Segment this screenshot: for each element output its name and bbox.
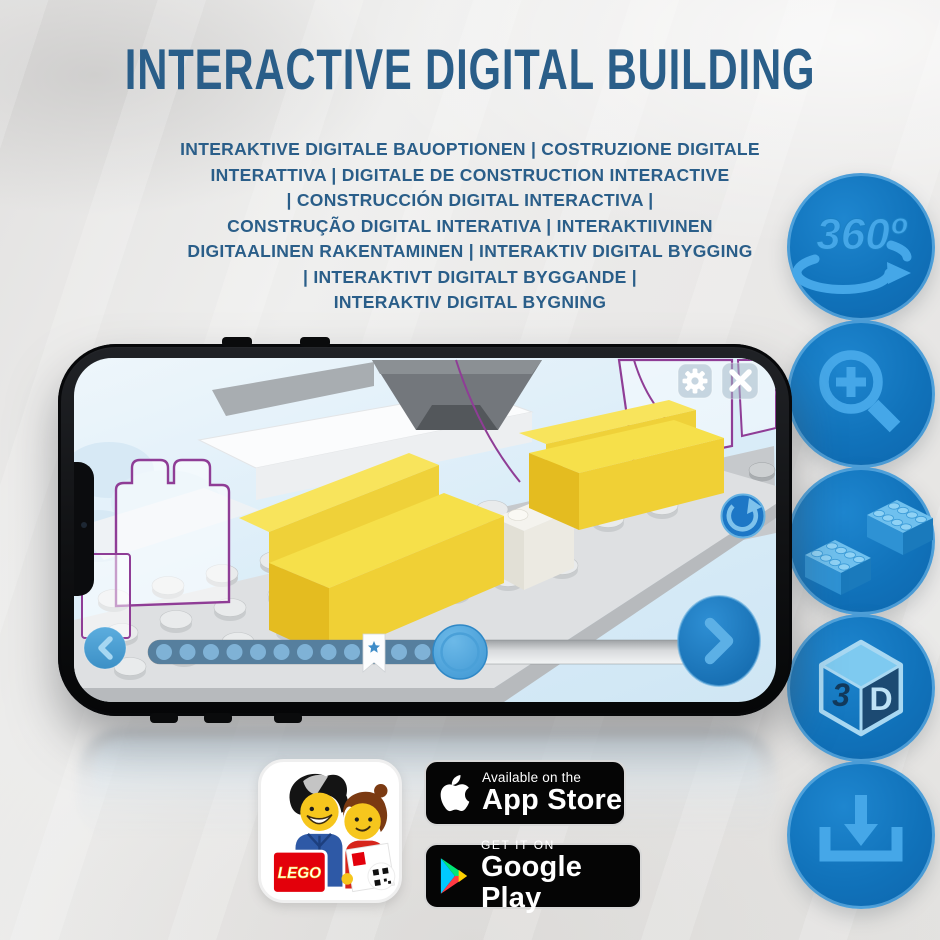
3d-cube-icon: 3 D [787, 614, 935, 762]
feature-zoom [787, 320, 935, 468]
cube-3-label: 3 [832, 677, 850, 713]
header: INTERACTIVE DIGITAL BUILDING [0, 40, 940, 99]
apple-icon [439, 775, 470, 812]
lego-app-icon[interactable]: LEGO [258, 759, 402, 903]
google-play-tagline: GET IT ON [481, 838, 640, 852]
phone-side-button [274, 713, 302, 723]
subtitle-block: INTERAKTIVE DIGITALE BAUOPTIONEN | COSTR… [120, 137, 820, 316]
subtitle-line: INTERAKTIVE DIGITALE BAUOPTIONEN | COSTR… [120, 137, 820, 163]
slider-knob[interactable] [433, 625, 487, 679]
cube-d-label: D [869, 681, 892, 717]
app-store-name: App Store [482, 785, 622, 816]
phone-notch [74, 462, 94, 596]
phone-side-button [204, 713, 232, 723]
phone-side-button [300, 337, 330, 347]
prev-step-button[interactable] [84, 627, 126, 669]
google-play-name: Google Play [481, 852, 640, 914]
phone-side-button [222, 337, 252, 347]
download-icon [787, 761, 935, 909]
app-store-tagline: Available on the [482, 770, 622, 785]
subtitle-line: | CONSTRUCCIÓN DIGITAL INTERACTIVA | [120, 188, 820, 214]
phone-side-button [150, 713, 178, 723]
google-play-icon [439, 856, 469, 896]
feature-360: 360º [787, 173, 935, 321]
page: { "header": { "title": "INTERACTIVE DIGI… [0, 0, 940, 940]
app-store-badge[interactable]: Available on the App Store [424, 760, 626, 826]
subtitle-line: CONSTRUÇÃO DIGITAL INTERATIVA | INTERAKT… [120, 214, 820, 240]
google-play-badge[interactable]: GET IT ON Google Play [424, 843, 642, 909]
phone [58, 344, 792, 716]
feature-bricks [787, 467, 935, 615]
svg-text:LEGO: LEGO [278, 865, 322, 882]
feature-download [787, 761, 935, 909]
subtitle-line: INTERATTIVA | DIGITALE DE CONSTRUCTION I… [120, 163, 820, 189]
subtitle-line: | INTERAKTIVT DIGITALT BYGGANDE | [120, 265, 820, 291]
rotate-button[interactable] [722, 495, 765, 538]
lego-logo: LEGO [273, 851, 327, 893]
subtitle-line: INTERAKTIV DIGITAL BYGNING [120, 290, 820, 316]
zoom-in-icon [787, 320, 935, 468]
phone-screen [74, 358, 776, 702]
360-label: 360º [816, 210, 907, 259]
page-title: INTERACTIVE DIGITAL BUILDING [125, 36, 816, 102]
feature-3d: 3 D [787, 614, 935, 762]
subtitle-line: DIGITAALINEN RAKENTAMINEN | INTERAKTIV D… [120, 239, 820, 265]
360-rotation-icon: 360º [787, 173, 935, 321]
camera-icon [81, 522, 87, 528]
bricks-icon [787, 467, 935, 615]
next-step-button[interactable] [678, 596, 760, 686]
